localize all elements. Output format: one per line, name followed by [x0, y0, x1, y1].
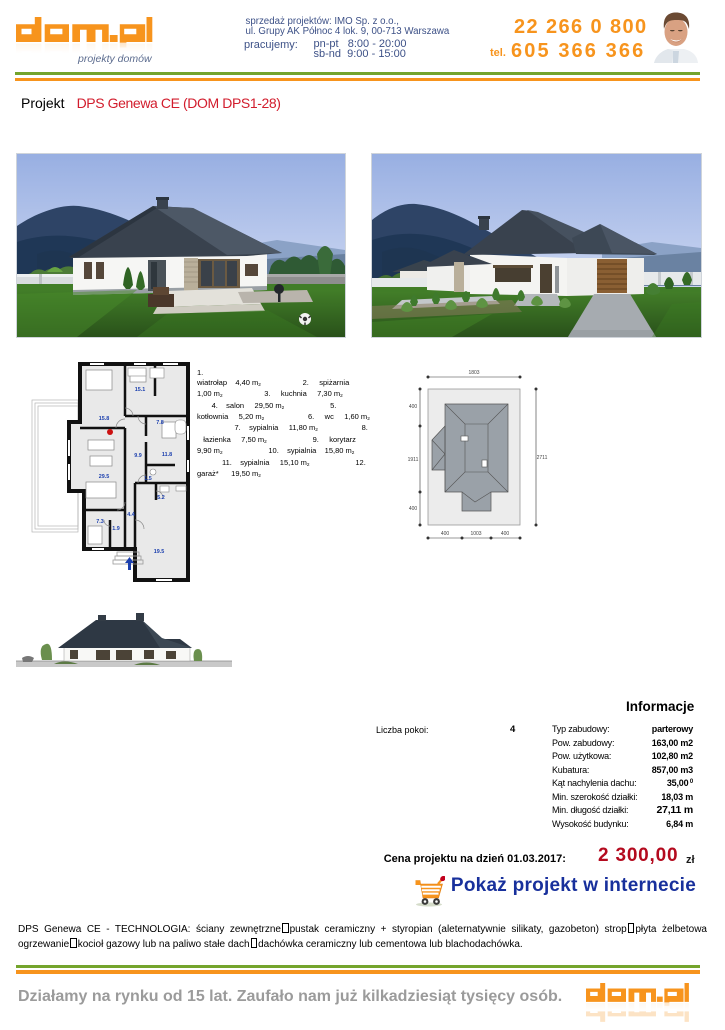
svg-text:15.1: 15.1	[135, 387, 146, 393]
svg-text:400: 400	[441, 531, 450, 537]
svg-text:7.3: 7.3	[96, 519, 104, 525]
svg-text:1.5: 1.5	[144, 476, 152, 482]
svg-text:5.2: 5.2	[157, 495, 165, 501]
svg-text:9.9: 9.9	[134, 453, 142, 459]
svg-text:400: 400	[409, 404, 418, 410]
svg-text:11.8: 11.8	[162, 452, 172, 458]
svg-text:4.4: 4.4	[127, 512, 135, 518]
svg-text:1911: 1911	[408, 457, 419, 463]
svg-text:400: 400	[409, 506, 418, 512]
svg-text:1.9: 1.9	[112, 526, 120, 532]
svg-text:2711: 2711	[537, 455, 548, 461]
svg-text:1803: 1803	[468, 370, 479, 376]
svg-text:19.5: 19.5	[154, 549, 165, 555]
svg-text:7.8: 7.8	[156, 420, 164, 426]
svg-text:1003: 1003	[470, 531, 481, 537]
svg-text:29.5: 29.5	[99, 474, 110, 480]
svg-text:400: 400	[501, 531, 510, 537]
svg-text:15.8: 15.8	[99, 416, 110, 422]
